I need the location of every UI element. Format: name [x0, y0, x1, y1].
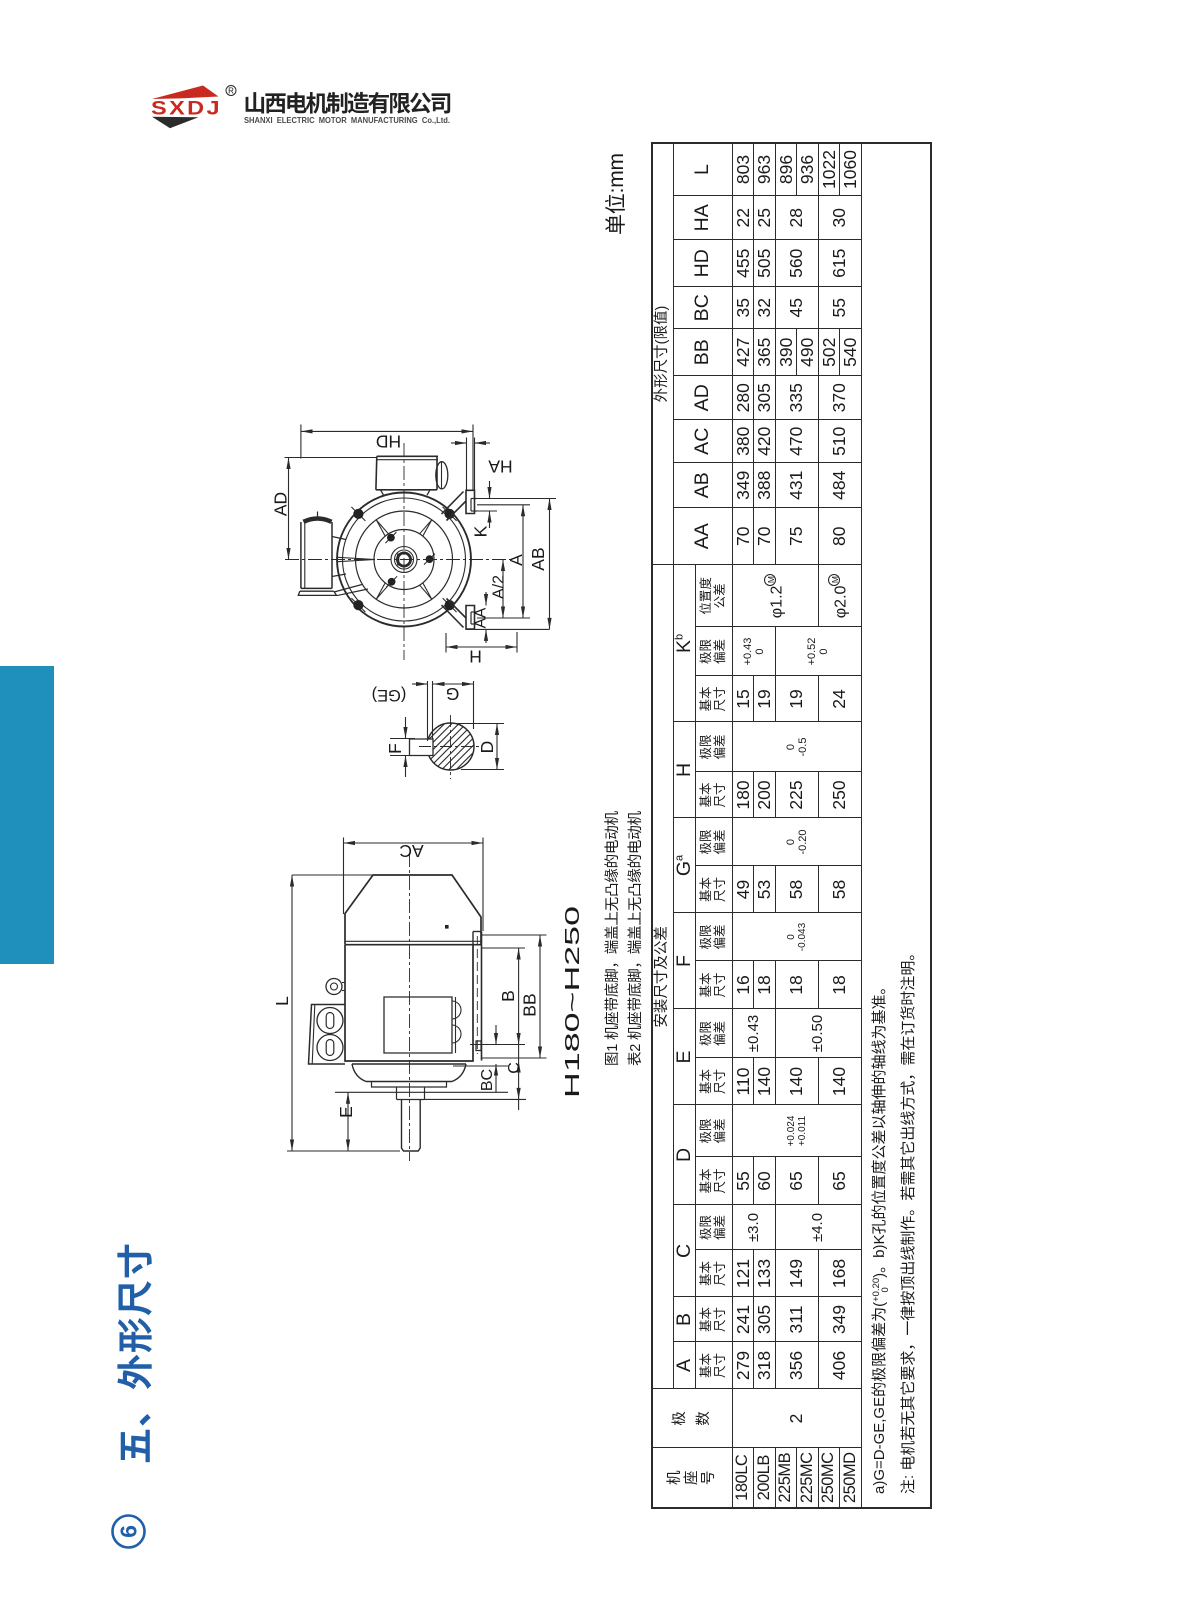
svg-text:HA: HA — [488, 456, 513, 476]
svg-text:H: H — [469, 646, 482, 666]
svg-text:K: K — [471, 525, 491, 537]
svg-text:6: 6 — [116, 1525, 142, 1538]
svg-text:R: R — [228, 87, 234, 96]
svg-text:SHANXI ELECTRIC MOTOR MANUF: SHANXI ELECTRIC MOTOR MANUFACTURING Co.,… — [244, 115, 450, 125]
svg-text:E: E — [336, 1106, 356, 1118]
svg-text:AC: AC — [399, 841, 423, 861]
svg-text:D: D — [477, 741, 497, 754]
svg-text:L: L — [272, 996, 292, 1006]
svg-text:SXDJ: SXDJ — [151, 98, 222, 120]
svg-text:山西电机制造有限公司: 山西电机制造有限公司 — [244, 86, 451, 119]
svg-text:H180~H250: H180~H250 — [562, 906, 584, 1098]
svg-text:(GE): (GE) — [372, 686, 407, 704]
svg-text:A/2: A/2 — [491, 575, 508, 599]
svg-text:HD: HD — [376, 431, 401, 451]
svg-text:B: B — [498, 990, 518, 1002]
svg-text:G: G — [446, 684, 460, 704]
svg-text:A: A — [506, 554, 526, 566]
svg-text:AD: AD — [271, 492, 291, 516]
svg-text:C: C — [506, 1062, 523, 1074]
svg-text:BB: BB — [520, 993, 540, 1016]
svg-text:BC: BC — [479, 1069, 496, 1091]
svg-text:F: F — [385, 743, 405, 754]
svg-text:AB: AB — [528, 547, 548, 570]
svg-text:AA: AA — [473, 607, 490, 628]
